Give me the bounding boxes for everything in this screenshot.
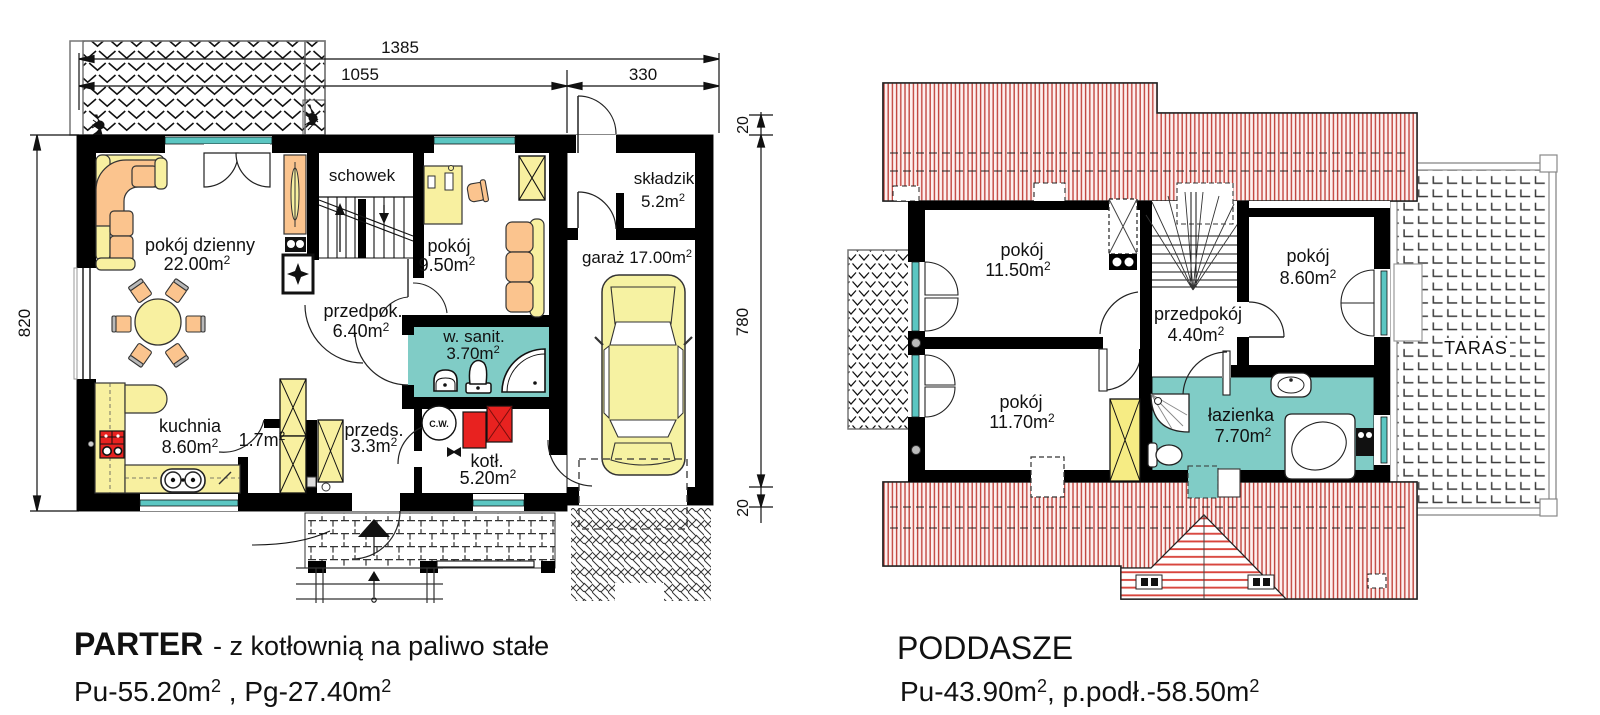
svg-text:20: 20 <box>735 499 752 517</box>
svg-text:780: 780 <box>733 308 752 336</box>
svg-text:pokój: pokój <box>999 392 1042 412</box>
svg-text:składzik: składzik <box>634 169 695 188</box>
svg-text:pokój dzienny: pokój dzienny <box>145 235 255 255</box>
svg-text:Pu-43.90m2, p.podł.-58.50m2: Pu-43.90m2, p.podł.-58.50m2 <box>900 676 1259 707</box>
svg-text:8.60m2: 8.60m2 <box>1280 267 1337 288</box>
svg-text:kuchnia: kuchnia <box>159 416 222 436</box>
svg-text:PODDASZE: PODDASZE <box>897 630 1073 666</box>
svg-text:5.20m2: 5.20m2 <box>460 467 517 488</box>
svg-text:22.00m2: 22.00m2 <box>164 253 231 274</box>
svg-text:garaż 17.00m2: garaż 17.00m2 <box>582 248 692 267</box>
svg-text:4.40m2: 4.40m2 <box>1168 324 1225 345</box>
svg-text:PARTER: PARTER <box>74 626 203 662</box>
svg-text:pokój: pokój <box>1000 240 1043 260</box>
svg-text:pokój: pokój <box>1286 246 1329 266</box>
svg-text:pokój: pokój <box>427 236 470 256</box>
svg-text:20: 20 <box>735 116 752 134</box>
svg-text:- z kotłownią na paliwo stałe: - z kotłownią na paliwo stałe <box>213 631 549 661</box>
svg-text:9.50m2: 9.50m2 <box>419 254 476 275</box>
svg-text:przedpok.: przedpok. <box>323 301 402 321</box>
svg-text:8.60m2: 8.60m2 <box>162 436 219 457</box>
svg-text:1055: 1055 <box>341 65 379 84</box>
svg-text:11.50m2: 11.50m2 <box>985 259 1051 280</box>
svg-text:330: 330 <box>629 65 657 84</box>
svg-text:7.70m2: 7.70m2 <box>1215 425 1272 446</box>
svg-text:schowek: schowek <box>329 166 396 185</box>
svg-text:C.W.: C.W. <box>429 419 449 429</box>
svg-text:Pu-55.20m2 , Pg-27.40m2: Pu-55.20m2 , Pg-27.40m2 <box>74 676 391 707</box>
svg-text:przedpokój: przedpokój <box>1154 304 1242 324</box>
svg-text:TARAS: TARAS <box>1444 338 1508 358</box>
svg-text:11.70m2: 11.70m2 <box>989 411 1055 432</box>
svg-text:3.70m2: 3.70m2 <box>446 344 499 363</box>
svg-text:1385: 1385 <box>381 38 419 57</box>
svg-text:łazienka: łazienka <box>1208 405 1275 425</box>
svg-text:6.40m2: 6.40m2 <box>333 320 390 341</box>
svg-text:5.2m2: 5.2m2 <box>641 192 685 211</box>
svg-text:1.7m2: 1.7m2 <box>239 429 286 450</box>
svg-text:820: 820 <box>15 309 34 337</box>
svg-text:3.3m2: 3.3m2 <box>351 435 398 456</box>
